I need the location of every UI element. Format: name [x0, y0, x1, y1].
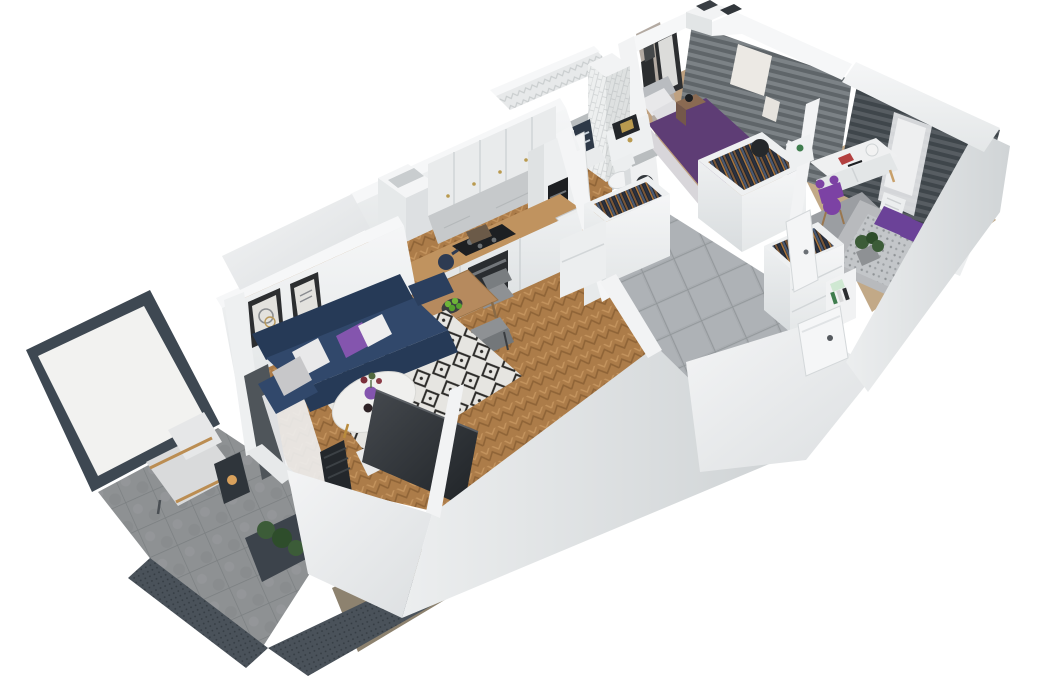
plant-leaf [288, 540, 304, 556]
render-canvas [0, 0, 1047, 700]
bunny-ear [830, 176, 839, 185]
table-lamp [685, 94, 693, 102]
plant-leaf [872, 240, 884, 252]
candle-holder [364, 404, 373, 413]
green-bottle [797, 145, 804, 152]
apartment-3d-render [0, 0, 1047, 700]
black-accent-chair [751, 139, 769, 157]
sphere-lamp [866, 144, 878, 156]
vanity-knob [628, 138, 633, 143]
lantern-candle [227, 475, 237, 485]
entrance-door-handle [827, 335, 833, 341]
door-handle [804, 250, 809, 255]
bunny-ear [816, 180, 825, 189]
